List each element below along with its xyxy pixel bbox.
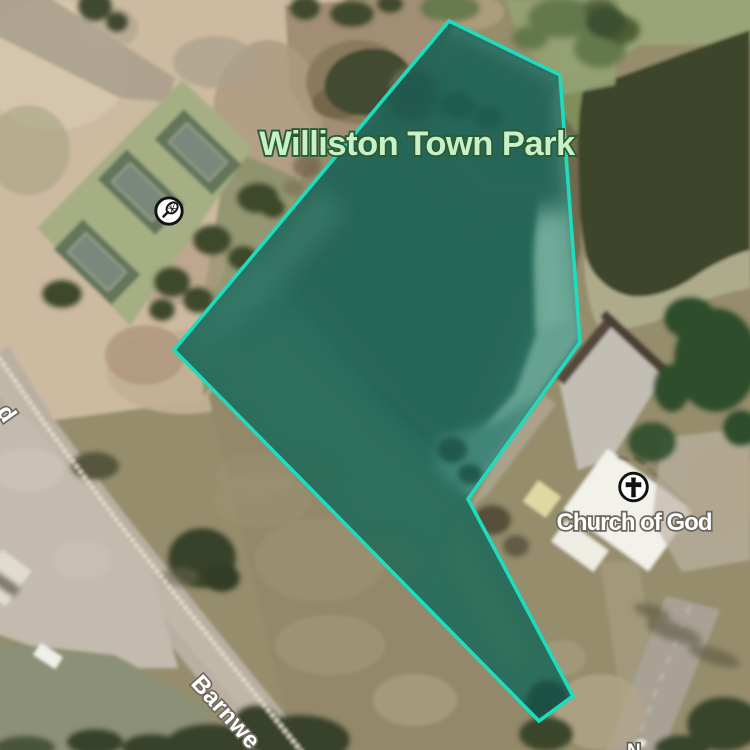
svg-text:Church of God: Church of God [557,509,712,536]
svg-text:Williston Town Park: Williston Town Park [259,125,576,163]
svg-text:N: N [627,741,641,750]
